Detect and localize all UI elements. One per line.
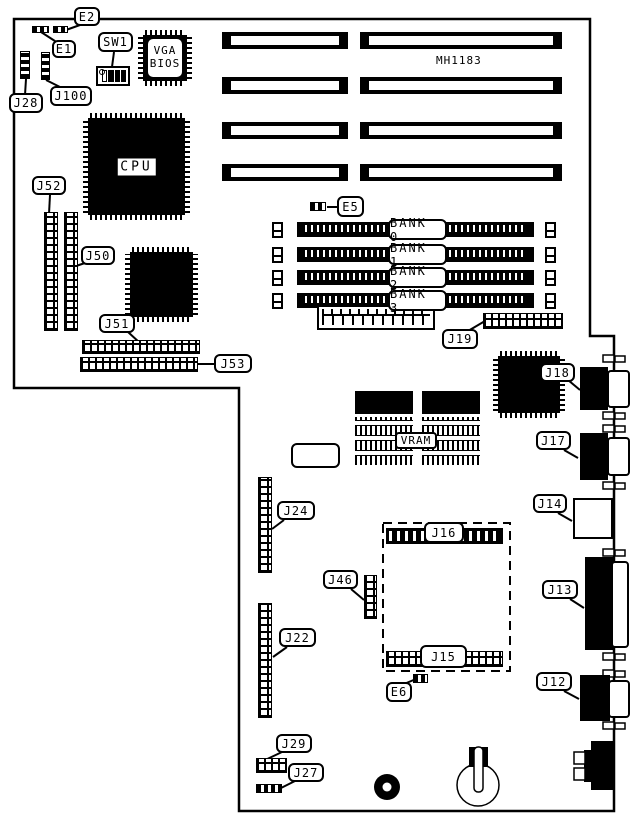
header-j29 xyxy=(256,758,287,773)
expansion-slot xyxy=(360,164,562,181)
slot-stripe xyxy=(231,168,339,177)
label-j27: J27 xyxy=(288,763,324,782)
simm-clip xyxy=(272,222,283,238)
label-e1: E1 xyxy=(52,40,76,58)
crystal-oscillator xyxy=(291,443,340,468)
label-j22: J22 xyxy=(279,628,316,647)
label-j52: J52 xyxy=(32,176,66,195)
label-j16: J16 xyxy=(424,522,464,543)
bank3-label: BANK 3 xyxy=(388,290,447,311)
label-j51: J51 xyxy=(99,314,135,333)
label-j17: J17 xyxy=(536,431,571,450)
chip-pins xyxy=(125,254,130,315)
simm-clip xyxy=(545,247,556,263)
port-j12 xyxy=(580,675,629,721)
chip-pins xyxy=(193,254,198,315)
port-j18 xyxy=(580,367,629,410)
jumper-e5 xyxy=(310,202,326,211)
slot-stripe xyxy=(231,126,339,135)
slot-stripe xyxy=(369,168,553,177)
chip-pins xyxy=(500,413,558,418)
label-j53: J53 xyxy=(214,354,252,373)
slot-stripe xyxy=(231,81,339,90)
label-j46: J46 xyxy=(323,570,358,589)
header-j27 xyxy=(256,784,282,793)
cpu-label: CPU xyxy=(117,158,155,175)
label-e5: E5 xyxy=(337,196,364,217)
dip-switch-sw1 xyxy=(96,66,130,86)
dip-switch-pos3 xyxy=(115,70,120,82)
header-j50 xyxy=(64,212,78,331)
simm-clip xyxy=(545,293,556,309)
chip-pins xyxy=(187,37,192,79)
chip-pins xyxy=(90,215,183,220)
motherboard-diagram: CPU VGA BIOS MH1183 BANK 0 BANK 1 xyxy=(0,0,634,823)
header-j24 xyxy=(258,477,272,573)
expansion-slot xyxy=(360,77,562,94)
vram-chip xyxy=(355,391,413,414)
label-e6: E6 xyxy=(386,682,412,702)
jumper-e2 xyxy=(53,26,68,33)
label-j18: J18 xyxy=(540,363,575,382)
dip-switch-pos4 xyxy=(121,70,126,82)
chip-pins xyxy=(145,30,185,35)
expansion-slot xyxy=(360,122,562,139)
port-j13 xyxy=(585,557,628,650)
header-j100 xyxy=(41,52,50,80)
port-j17 xyxy=(580,433,629,480)
simm-clip xyxy=(272,293,283,309)
dip-switch-pos2 xyxy=(108,70,113,82)
expansion-slot xyxy=(222,164,348,181)
jumper-e6 xyxy=(413,674,428,683)
label-j100: J100 xyxy=(50,86,92,106)
header-j46 xyxy=(364,575,377,619)
bank1-label: BANK 1 xyxy=(388,244,447,265)
power-header-pins xyxy=(322,316,430,325)
header-j28 xyxy=(20,51,30,79)
speaker xyxy=(374,774,400,800)
label-j24: J24 xyxy=(277,501,315,520)
connector-j51 xyxy=(82,340,200,354)
expansion-slot xyxy=(222,122,348,139)
chip-pins xyxy=(132,317,191,322)
chip-pins xyxy=(185,120,190,213)
bank2-label: BANK 2 xyxy=(388,267,447,288)
header-j22 xyxy=(258,603,272,718)
label-j13: J13 xyxy=(542,580,578,599)
slot-stripe xyxy=(231,36,339,45)
label-j19: J19 xyxy=(442,329,478,349)
label-j12: J12 xyxy=(536,672,572,691)
header-j52 xyxy=(44,212,58,331)
part-number: MH1183 xyxy=(436,54,482,67)
vga-bios-chip: VGA BIOS xyxy=(143,35,187,81)
slot-stripe xyxy=(369,81,553,90)
vram-label: VRAM xyxy=(395,432,437,449)
simm-clip xyxy=(545,222,556,238)
bank0-label: BANK 0 xyxy=(388,219,447,240)
chip-pins xyxy=(145,81,185,86)
chip-pins xyxy=(493,358,498,411)
label-j28: J28 xyxy=(9,93,43,113)
simm-clip xyxy=(272,247,283,263)
label-j15: J15 xyxy=(420,645,467,668)
label-j50: J50 xyxy=(81,246,115,265)
cpu-chip: CPU xyxy=(88,118,185,215)
expansion-slot xyxy=(222,77,348,94)
expansion-slot xyxy=(360,32,562,49)
connector-j19 xyxy=(483,313,563,329)
expansion-slot xyxy=(222,32,348,49)
vram-chip xyxy=(422,391,480,414)
chipset-chip xyxy=(130,252,193,317)
chip-pins xyxy=(500,351,558,356)
label-j14: J14 xyxy=(533,494,567,513)
label-j29: J29 xyxy=(276,734,312,753)
slot-stripe xyxy=(369,36,553,45)
chip-pins xyxy=(83,120,88,213)
dip-switch-pos1 xyxy=(102,70,107,82)
vga-bios-line2: BIOS xyxy=(150,58,181,71)
chip-pins xyxy=(132,247,191,252)
connector-j53 xyxy=(80,357,198,372)
label-sw1: SW1 xyxy=(98,32,133,52)
slot-stripe xyxy=(369,126,553,135)
port-j14 xyxy=(574,499,612,538)
chip-pins xyxy=(90,113,183,118)
simm-clip xyxy=(545,270,556,286)
simm-clip xyxy=(272,270,283,286)
chip-pins xyxy=(138,37,143,79)
label-e2: E2 xyxy=(74,7,100,26)
vga-bios-label: VGA BIOS xyxy=(148,39,182,77)
jumper-e1 xyxy=(32,26,49,33)
